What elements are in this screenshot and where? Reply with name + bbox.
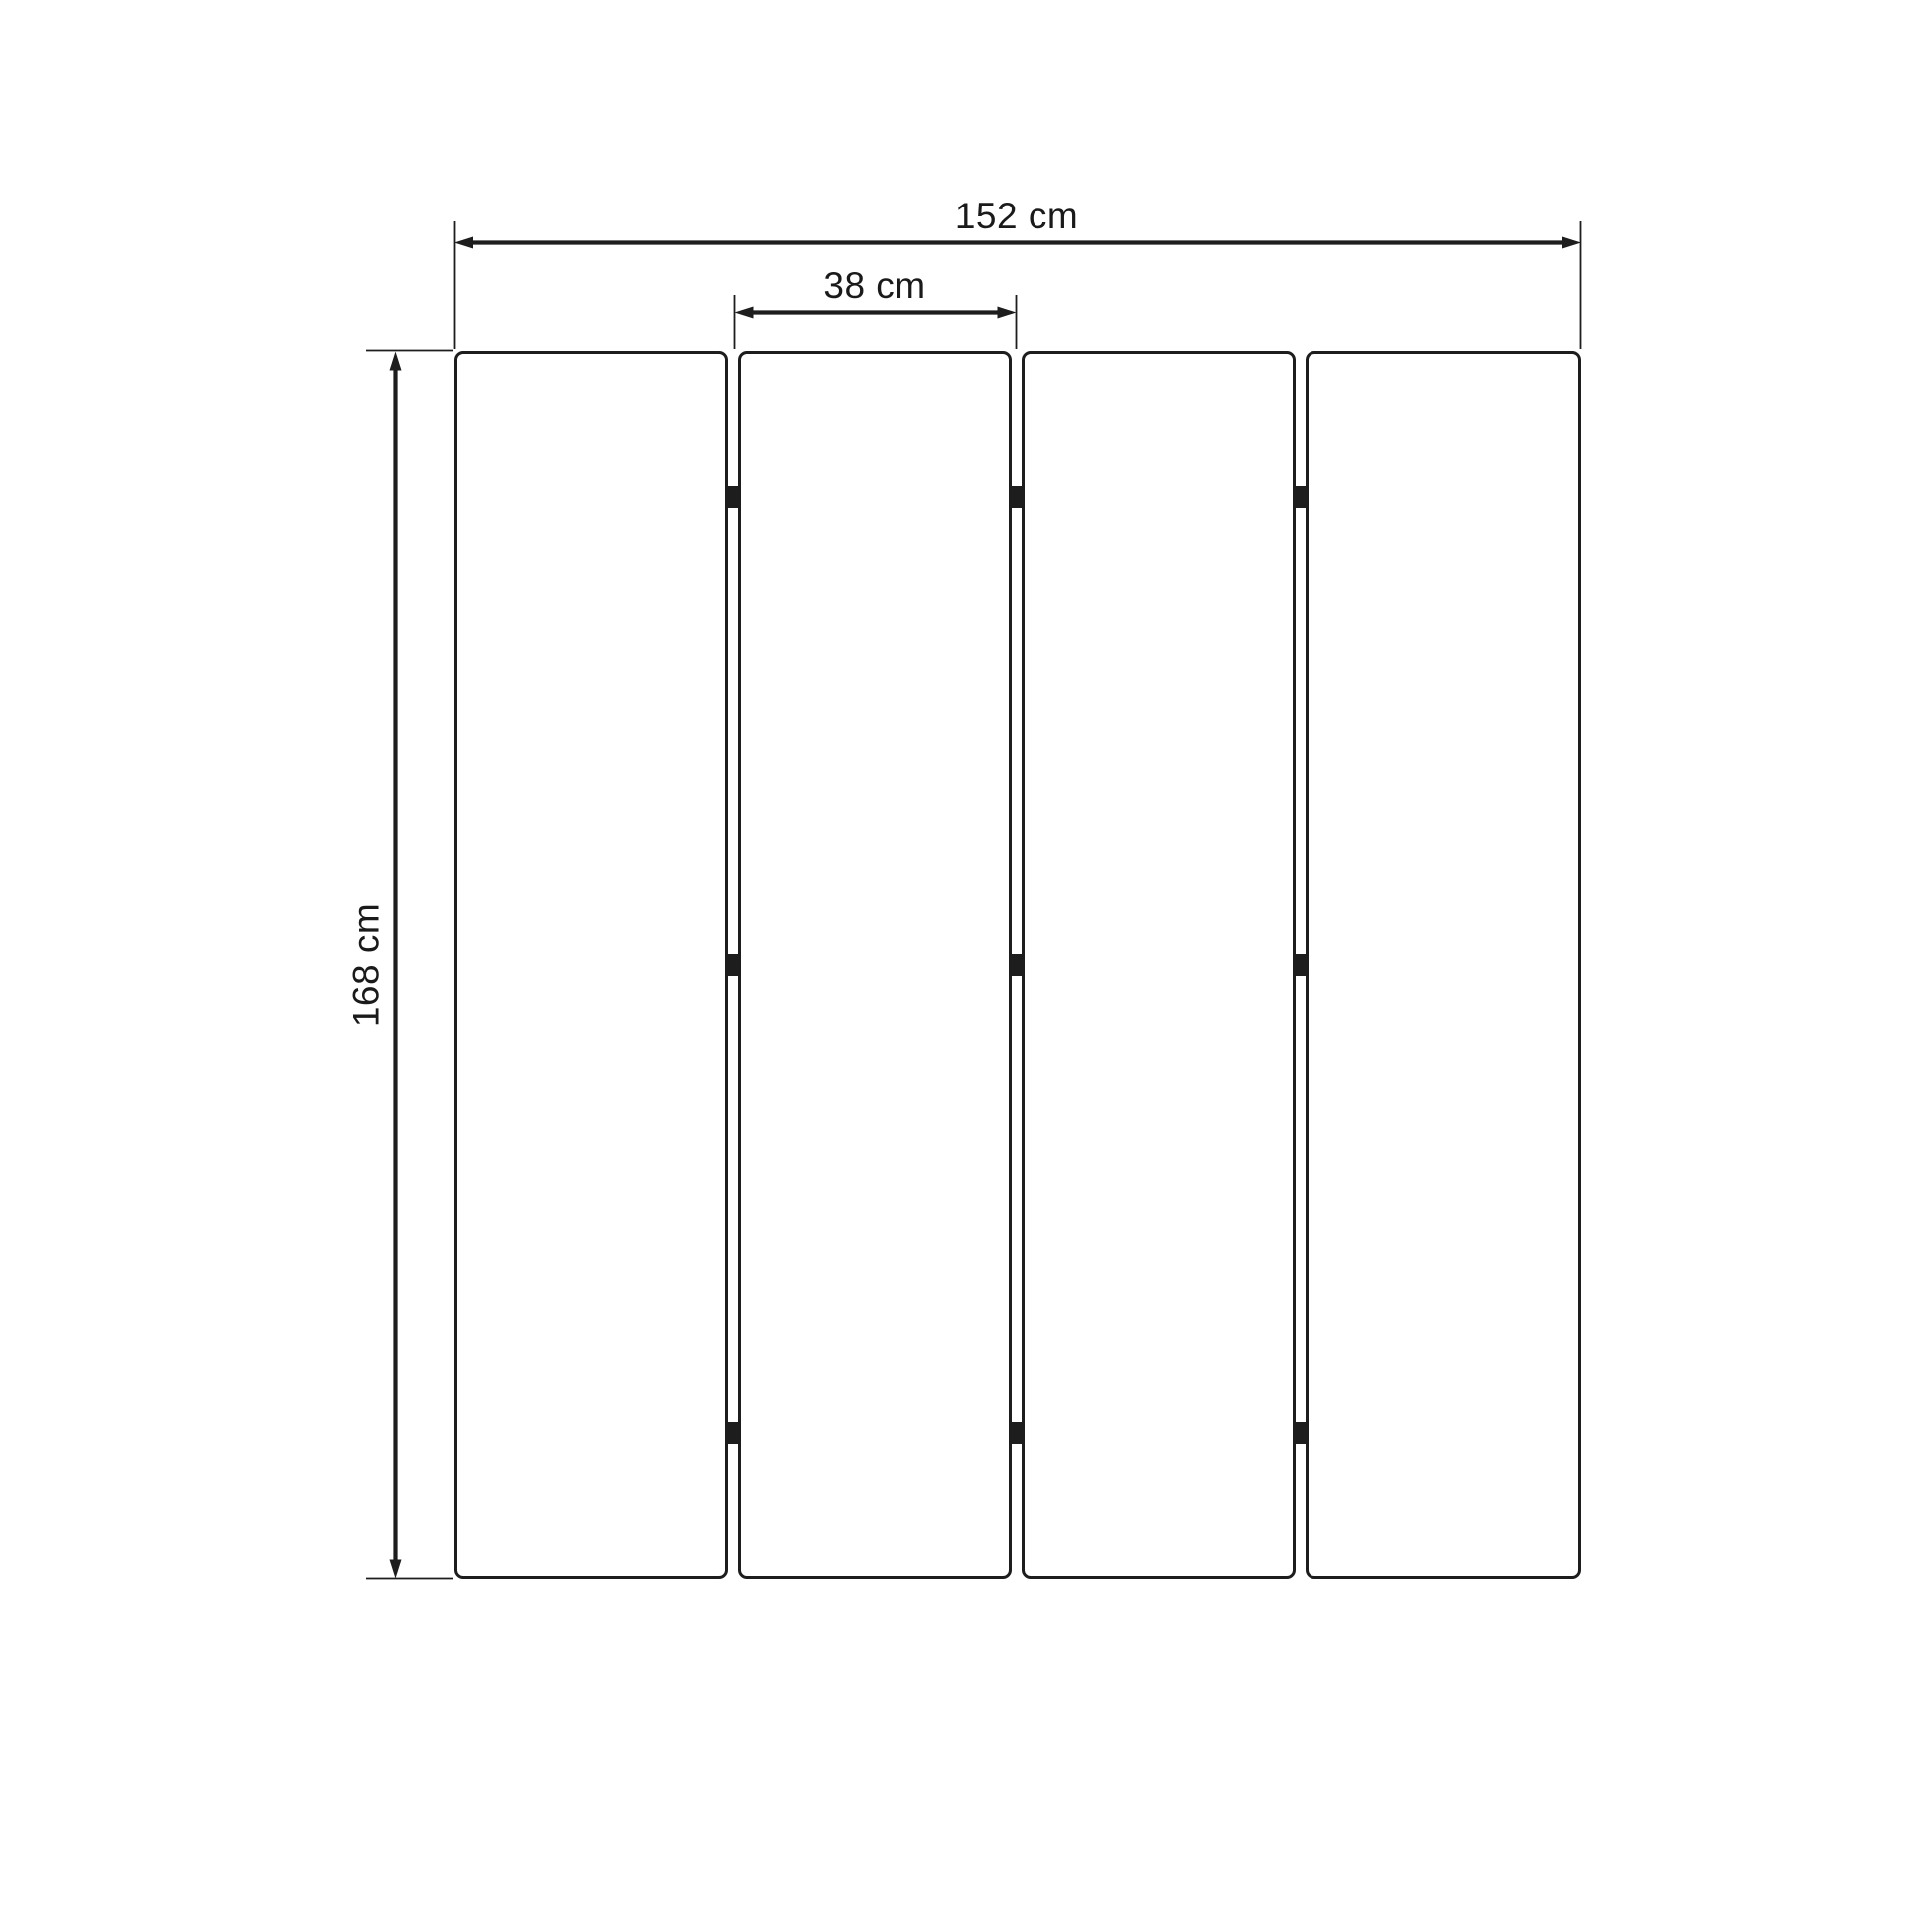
- hinge: [726, 1422, 740, 1444]
- panel-3: [1022, 351, 1296, 1579]
- arrowhead-right-icon: [1562, 237, 1581, 249]
- arrowhead-right-icon: [998, 307, 1017, 319]
- panel-1: [454, 351, 728, 1579]
- hinge: [1294, 486, 1308, 508]
- total-width-dimension: [454, 221, 1581, 349]
- panel-dimension-diagram: 152 cm 38 cm 168 cm: [0, 0, 1932, 1932]
- hinge: [1010, 1422, 1024, 1444]
- panel-width-label: 38 cm: [823, 267, 925, 304]
- arrowhead-up-icon: [390, 352, 402, 371]
- arrowhead-down-icon: [390, 1560, 402, 1579]
- arrowhead-left-icon: [735, 307, 754, 319]
- hinge: [726, 954, 740, 976]
- height-label: 168 cm: [348, 903, 385, 1027]
- hinge: [1010, 954, 1024, 976]
- hinge: [1294, 954, 1308, 976]
- panel-4: [1306, 351, 1581, 1579]
- panel-2: [738, 351, 1012, 1579]
- total-width-label: 152 cm: [955, 198, 1078, 234]
- hinge: [1294, 1422, 1308, 1444]
- arrowhead-left-icon: [454, 237, 473, 249]
- hinge: [1010, 486, 1024, 508]
- hinge: [726, 486, 740, 508]
